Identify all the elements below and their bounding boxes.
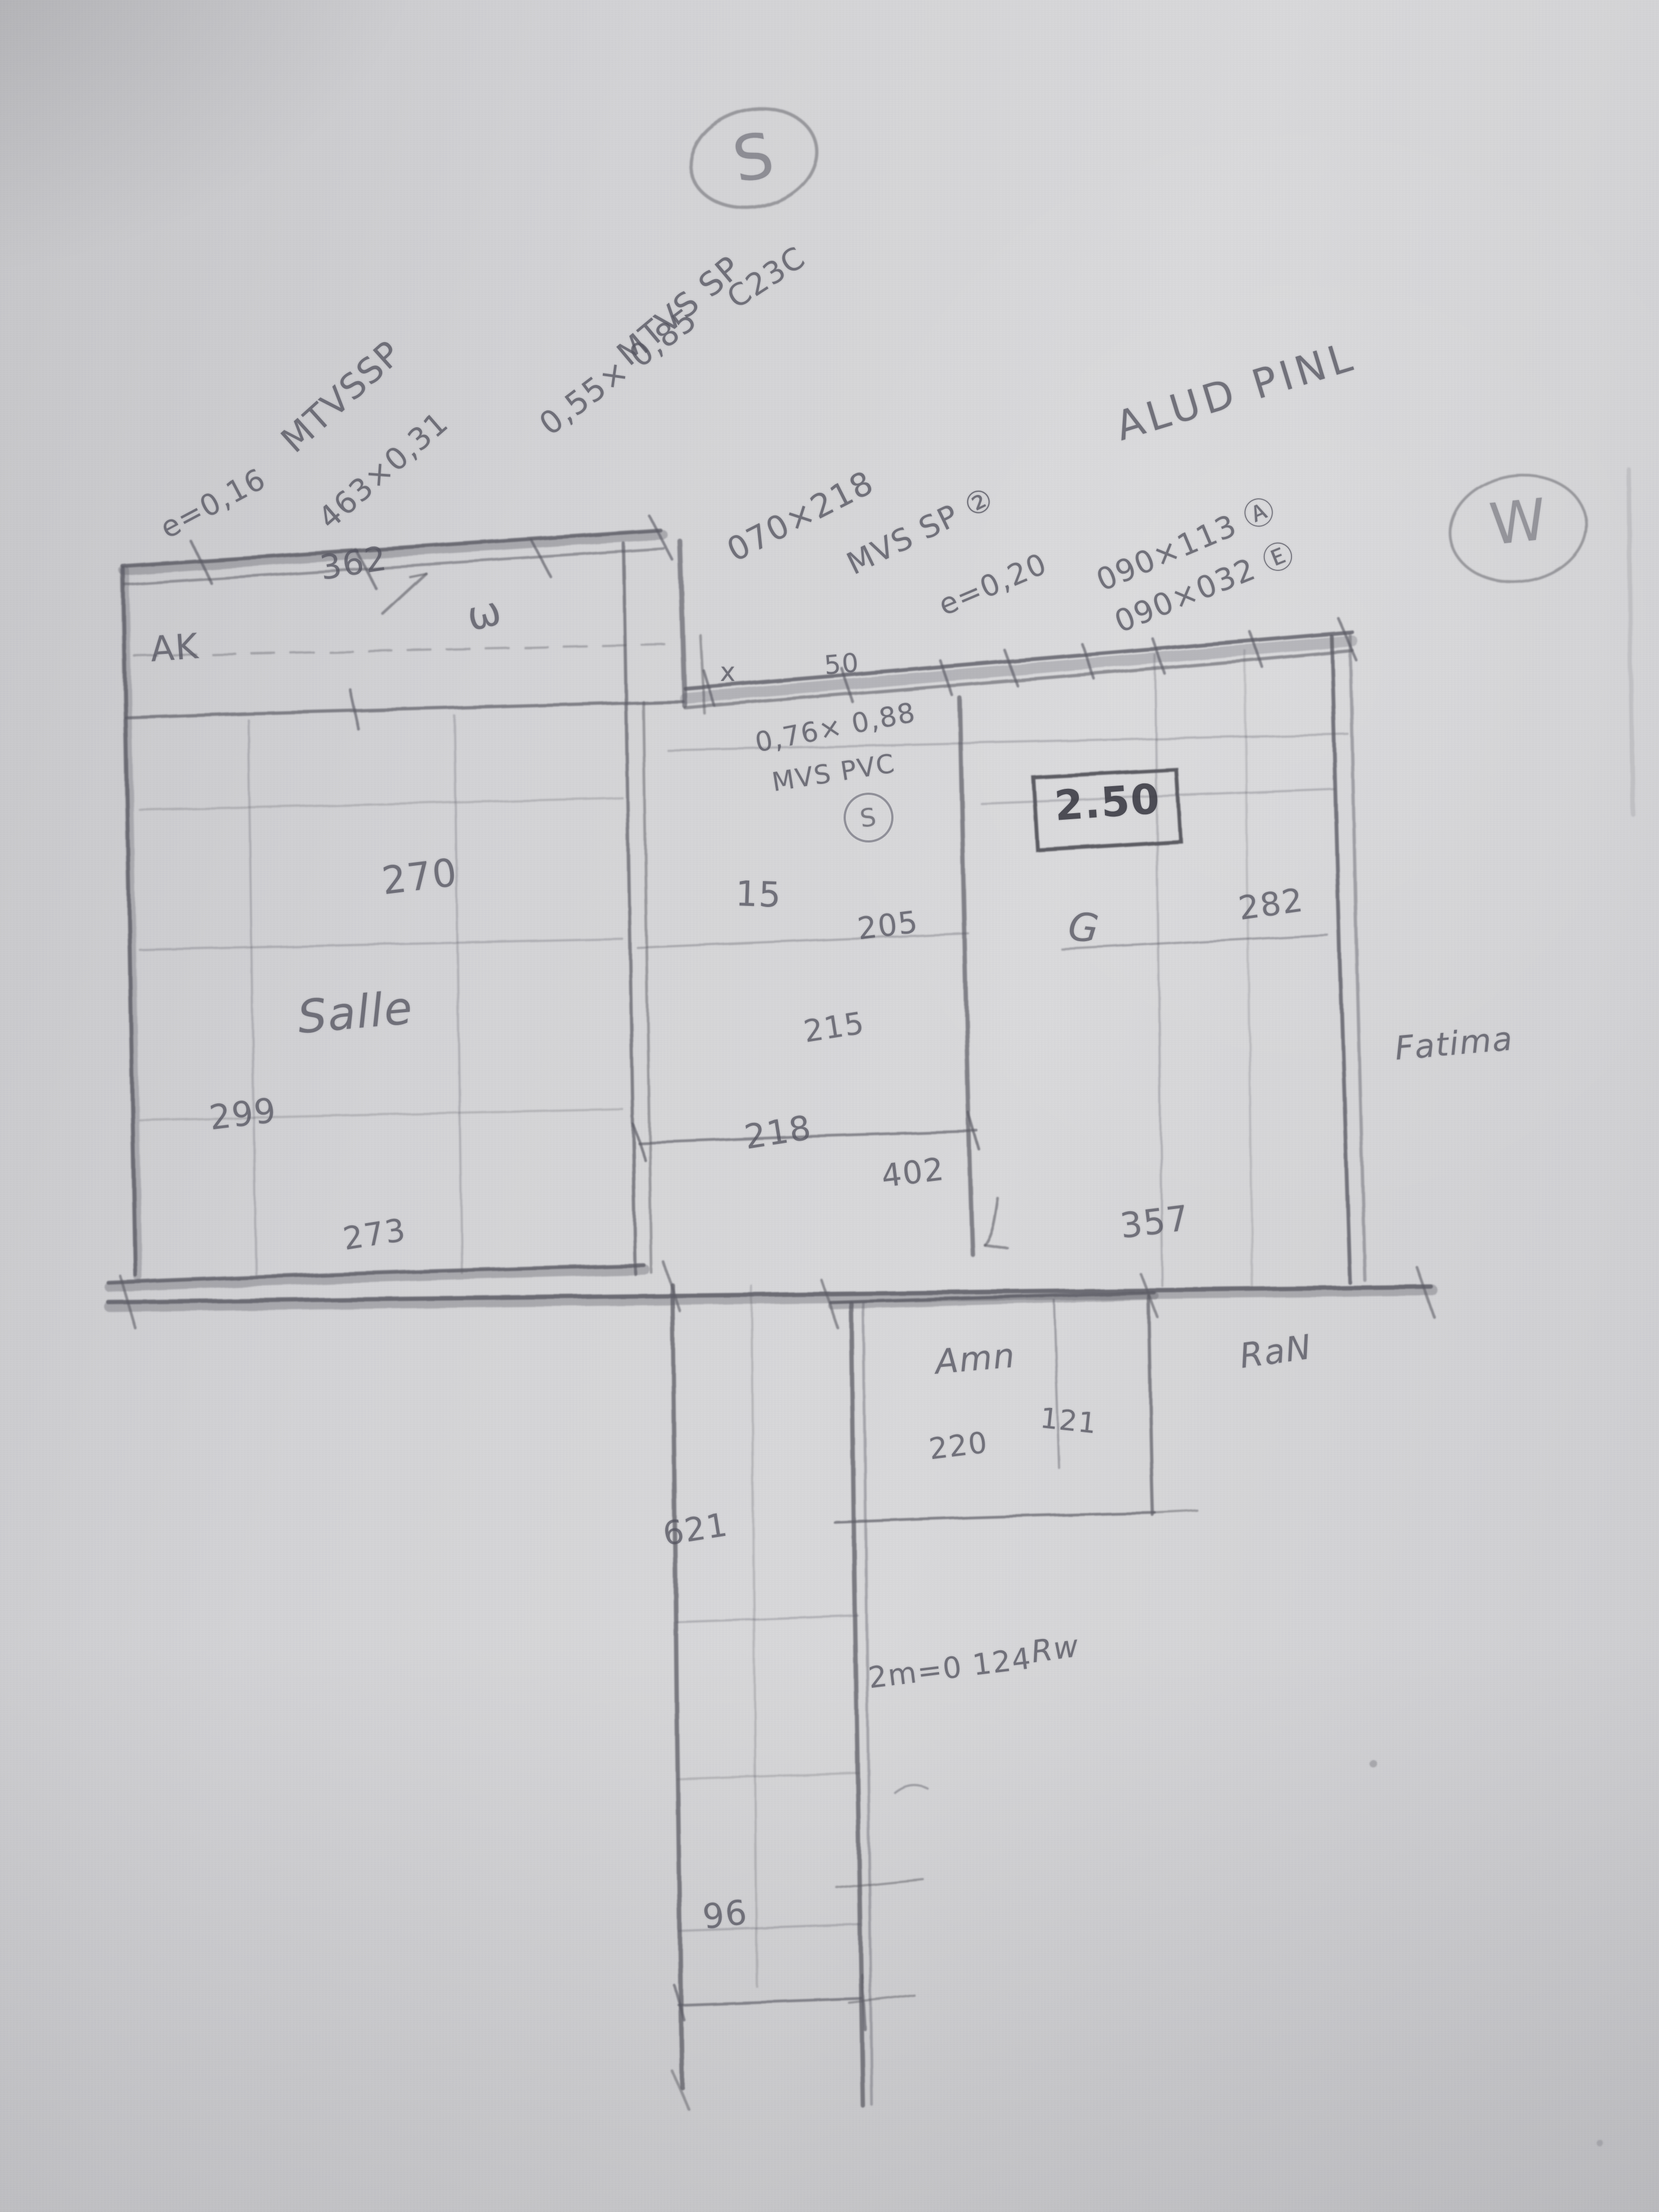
dim-96: 96 bbox=[700, 1892, 750, 1937]
label-rw: Rw bbox=[1029, 1629, 1082, 1670]
dim-121: 121 bbox=[1039, 1402, 1099, 1441]
photo-of-sketch: S W MTVSSP e=0,16 463×0,31 MTVS SP 0,55×… bbox=[0, 0, 1659, 2212]
compass-west-label: W bbox=[1487, 486, 1551, 558]
boxed-height-250: 2.50 bbox=[1053, 774, 1162, 829]
room-name-salle: Salle bbox=[295, 981, 415, 1044]
dim-220: 220 bbox=[927, 1425, 990, 1467]
mark-x: x bbox=[720, 657, 736, 687]
dim-50: 50 bbox=[823, 647, 861, 680]
dim-15: 15 bbox=[735, 874, 782, 916]
dim-402: 402 bbox=[879, 1150, 947, 1195]
dim-270: 270 bbox=[380, 850, 460, 903]
dim-205: 205 bbox=[856, 904, 921, 947]
label-ak: AK bbox=[149, 627, 201, 670]
window-mark-s: S bbox=[858, 802, 879, 833]
dim-357: 357 bbox=[1118, 1198, 1192, 1246]
door-mark-g: G bbox=[1066, 903, 1102, 952]
room-name-amn: Amn bbox=[934, 1335, 1017, 1382]
dim-299: 299 bbox=[207, 1090, 279, 1138]
